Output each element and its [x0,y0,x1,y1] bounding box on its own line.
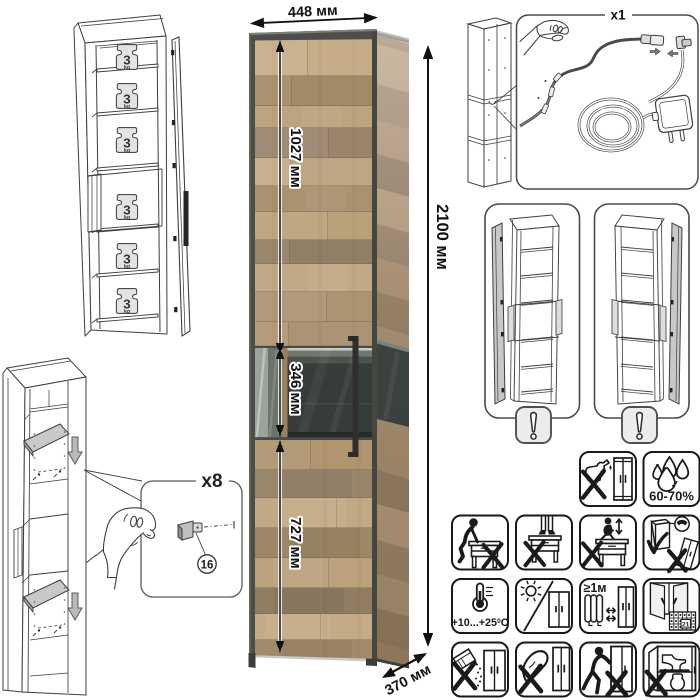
svg-text:≥1м: ≥1м [583,581,606,595]
svg-text:16: 16 [201,560,214,572]
svg-text:kg: kg [124,215,130,221]
svg-text:21: 21 [682,622,690,629]
svg-text:2100 мм: 2100 мм [433,204,451,270]
svg-text:448 мм: 448 мм [288,3,338,21]
svg-text:kg: kg [124,148,130,154]
svg-text:x8: x8 [201,471,222,492]
svg-text:kg: kg [124,264,130,270]
svg-text:727 мм: 727 мм [287,517,304,568]
svg-text:1027 мм: 1027 мм [287,128,304,188]
svg-text:kg: kg [124,309,130,315]
svg-text:kg: kg [124,65,130,71]
svg-text:346 мм: 346 мм [287,363,304,414]
svg-text:kg: kg [124,104,130,110]
svg-text:x1: x1 [610,8,626,23]
svg-text:60-70%: 60-70% [649,489,694,504]
svg-text:+10...+250C: +10...+250C [451,617,508,629]
